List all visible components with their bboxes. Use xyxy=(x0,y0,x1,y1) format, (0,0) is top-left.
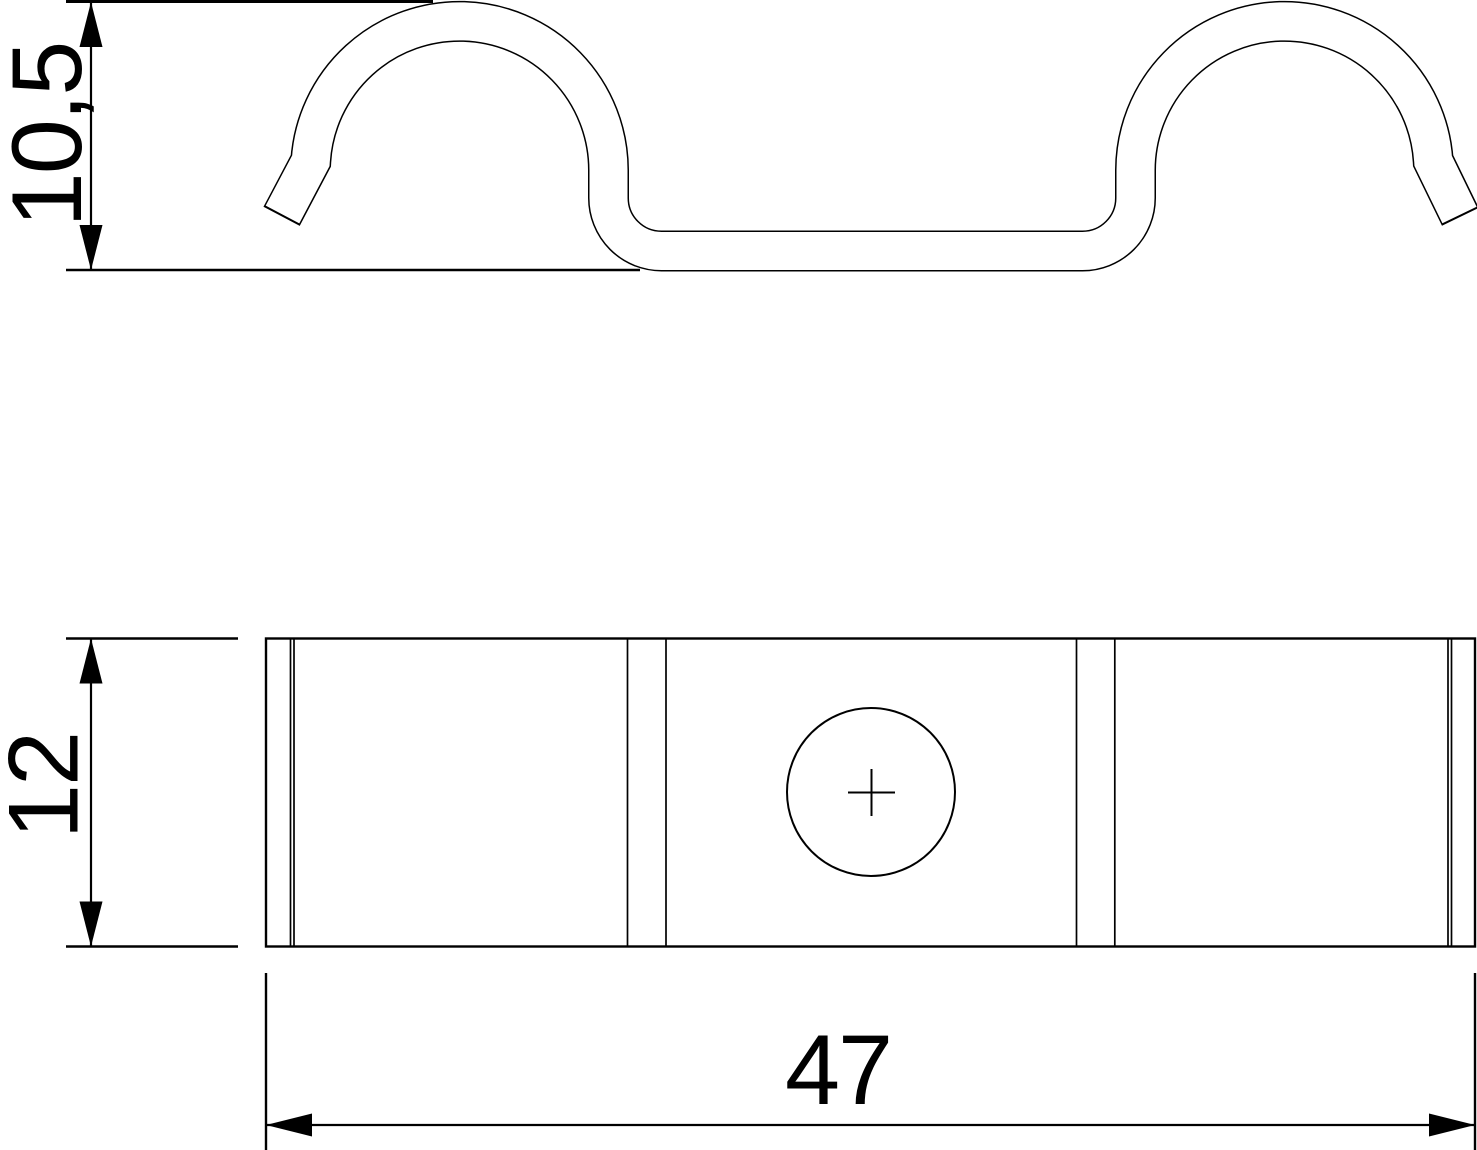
svg-text:12: 12 xyxy=(0,733,99,839)
svg-text:10,5: 10,5 xyxy=(0,43,102,228)
svg-text:47: 47 xyxy=(785,1014,891,1125)
